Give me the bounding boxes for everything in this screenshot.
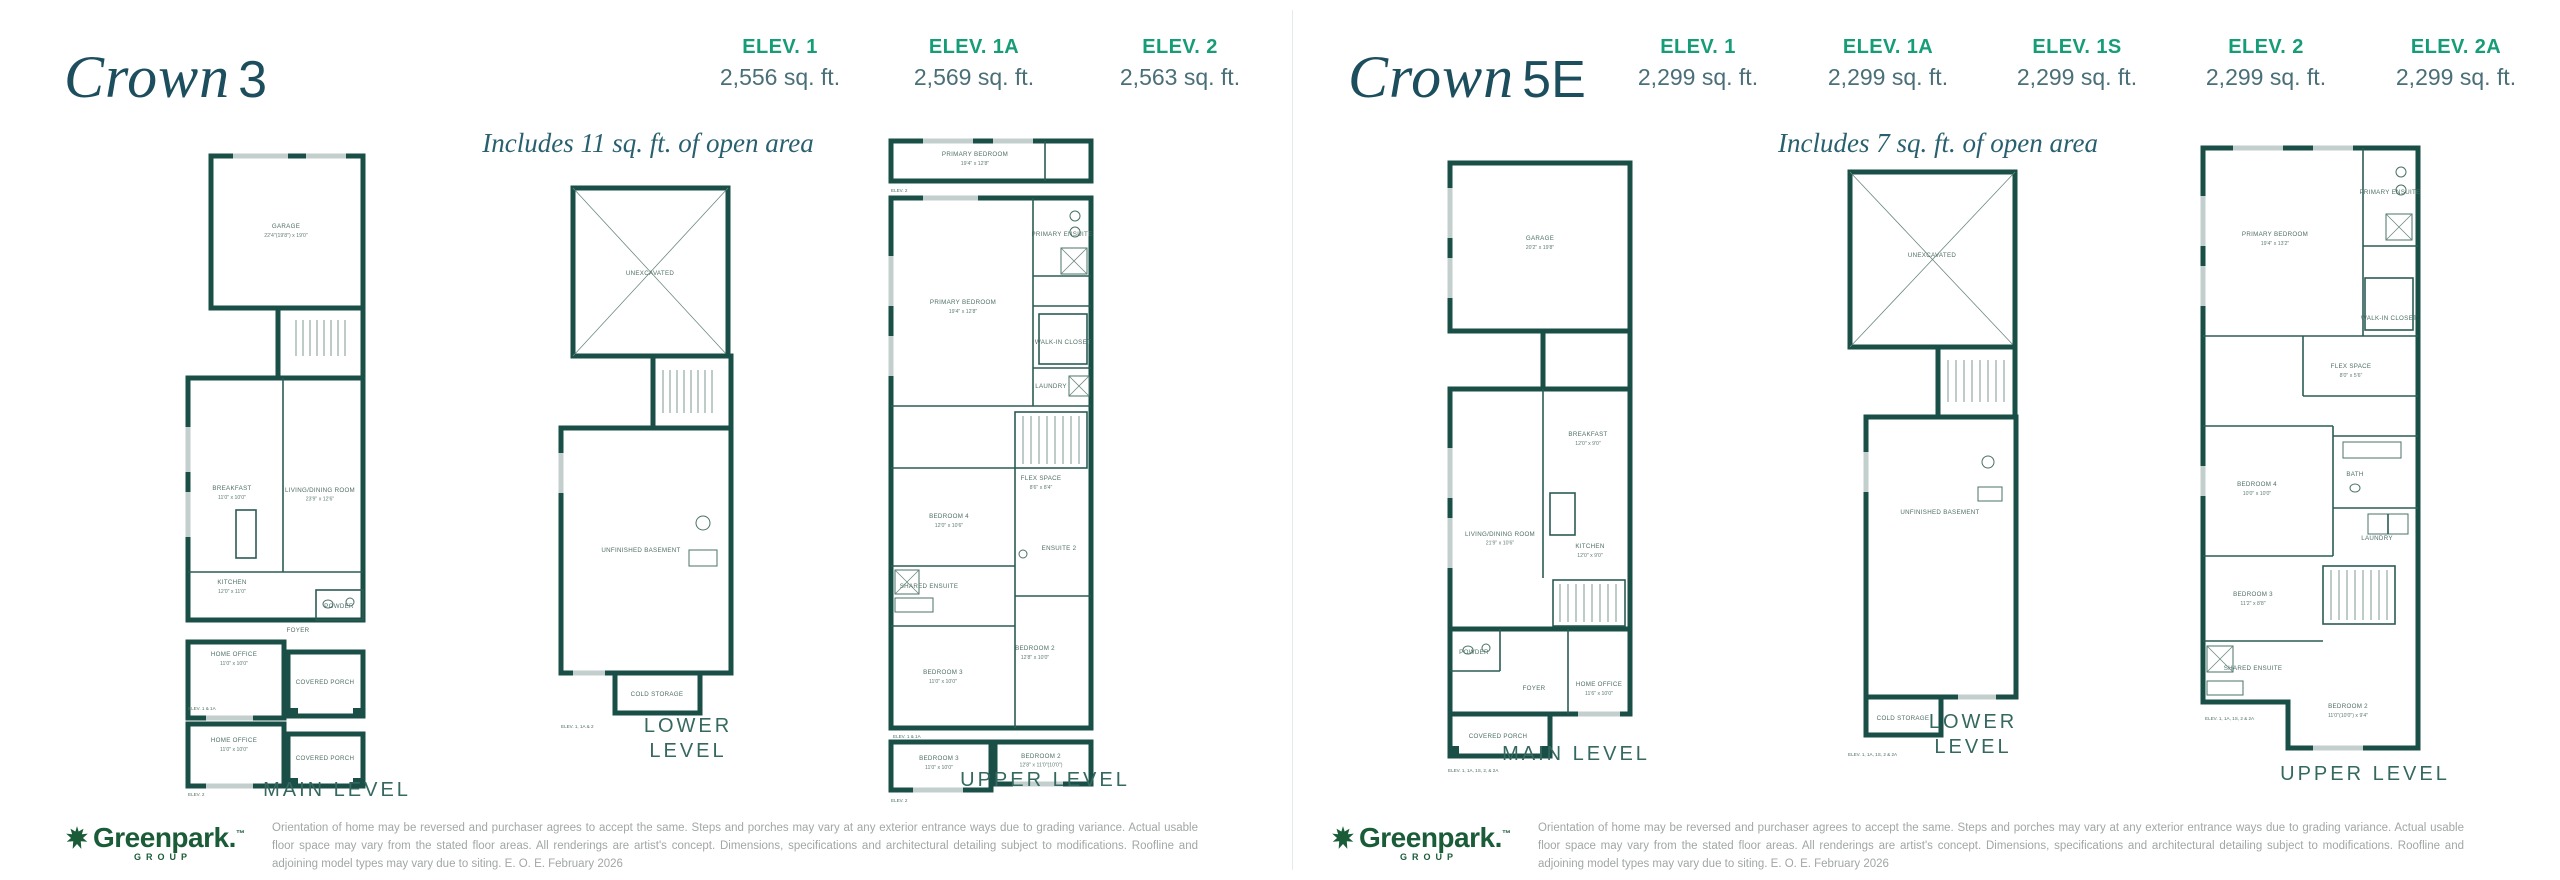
room-label: UNEXCAVATED	[626, 270, 675, 277]
room-label: HOME OFFICE	[211, 737, 257, 744]
room-label: SHARED ENSUITE	[900, 583, 959, 590]
trademark-symbol: ™	[236, 829, 245, 839]
stairs	[1560, 584, 1616, 622]
elevation-sqft: 2,299 sq. ft.	[1803, 64, 1973, 91]
elevation-col: ELEV. 1A 2,569 sq. ft.	[884, 36, 1064, 91]
room-dimensions: 11'0" x 10'0"	[220, 747, 248, 753]
elevation-variant-note: ELEV. 2	[891, 188, 908, 193]
room-label: BREAKFAST	[212, 485, 251, 492]
room-label: LAUNDRY	[2361, 535, 2393, 542]
room-label: LIVING/DINING ROOM	[285, 487, 355, 494]
level-label-main: MAIN LEVEL	[252, 778, 422, 803]
room-label: PRIMARY BEDROOM	[2242, 231, 2308, 238]
floor-plan-crown5e-lower-level: UNEXCAVATEDUNFINISHED BASEMENTCOLD STORA…	[1838, 162, 2028, 772]
room-dimensions: 12'0" x 10'6"	[935, 523, 964, 529]
room-dimensions: 12'0" x 9'0"	[1575, 441, 1601, 447]
open-area-note: Includes 11 sq. ft. of open area	[478, 128, 818, 159]
elevation-col: ELEV. 2A 2,299 sq. ft.	[2371, 36, 2541, 91]
panel-divider	[1292, 10, 1293, 870]
elevation-variant-note: ELEV. 2	[891, 798, 908, 803]
room-label: BEDROOM 2	[1015, 645, 1055, 652]
elevation-variant-note: ELEV. 1, 1A, 1S, 2, & 2A	[1448, 768, 1499, 773]
floor-plan-crown3-lower-level: UNEXCAVATEDUNFINISHED BASEMENTCOLD STORA…	[553, 178, 748, 763]
room-dimensions: 19'4" x 12'8"	[961, 161, 990, 167]
elevation-sqft: 2,299 sq. ft.	[1613, 64, 1783, 91]
room-label: LIVING/DINING ROOM	[1465, 531, 1535, 538]
room-label: BATH	[2346, 471, 2363, 478]
elevation-variant-note: ELEV. 1, 1A, 1S, 2 & 2A	[1848, 752, 1898, 757]
elevation-sqft: 2,563 sq. ft.	[1090, 64, 1270, 91]
room-label: WALK-IN CLOSET	[2361, 315, 2417, 322]
elevation-label: ELEV. 1S	[1992, 36, 2162, 59]
room-label: HOME OFFICE	[211, 651, 257, 658]
maple-leaf-icon	[64, 825, 90, 851]
stairs	[2331, 570, 2387, 620]
room-label: KITCHEN	[1575, 543, 1604, 550]
room-label: POWDER	[324, 603, 354, 610]
room-label: BEDROOM 3	[919, 755, 959, 762]
room-label: PRIMARY BEDROOM	[930, 299, 996, 306]
elevation-label: ELEV. 1	[1613, 36, 1783, 59]
room-label: PRIMARY BEDROOM	[942, 151, 1008, 158]
elevation-sqft: 2,556 sq. ft.	[690, 64, 870, 91]
maple-leaf-icon	[1330, 825, 1356, 851]
legal-disclaimer: Orientation of home may be reversed and …	[272, 820, 1198, 873]
room-dimensions: 11'0" x 10'0"	[925, 765, 953, 771]
elevation-col: ELEV. 1 2,299 sq. ft.	[1613, 36, 1783, 91]
room-label: PRIMARY ENSUITE	[2359, 189, 2420, 196]
brand-wordmark: Greenpark.™	[93, 822, 244, 854]
room-label: BEDROOM 2	[1021, 753, 1061, 760]
room-label: POWDER	[1459, 649, 1489, 656]
level-label-lower: LOWER LEVEL	[628, 714, 748, 764]
room-label: FLEX SPACE	[1021, 475, 1062, 482]
room-label: BEDROOM 2	[2328, 703, 2368, 710]
level-label-upper: UPPER LEVEL	[955, 768, 1135, 793]
elevation-sqft: 2,569 sq. ft.	[884, 64, 1064, 91]
room-label: BEDROOM 3	[923, 669, 963, 676]
room-dimensions: 12'0" x 11'0"	[218, 589, 246, 595]
room-dimensions: 12'8" x 10'0"	[1021, 655, 1050, 661]
elevation-col: ELEV. 1 2,556 sq. ft.	[690, 36, 870, 91]
room-label: COVERED PORCH	[296, 679, 355, 686]
room-dimensions: 8'0" x 5'6"	[2340, 373, 2363, 379]
stairs	[1948, 360, 2004, 402]
model-number: 3	[238, 51, 267, 109]
elevation-label: ELEV. 2	[2181, 36, 2351, 59]
model-title-crown-3: Crown3	[64, 43, 267, 112]
room-dimensions: 10'0" x 10'0"	[2243, 491, 2272, 497]
stairs	[296, 320, 345, 356]
room-dimensions: 11'2" x 8'8"	[2240, 601, 2265, 607]
elevation-col: ELEV. 1A 2,299 sq. ft.	[1803, 36, 1973, 91]
greenpark-logo: Greenpark.™ GROUP	[64, 822, 264, 862]
room-dimensions: 19'4" x 12'8"	[949, 309, 978, 315]
room-dimensions: 11'0" x 10'0"	[218, 495, 246, 501]
elevation-variant-note: ELEV. 1 & 1A	[893, 734, 922, 739]
elevation-variant-note: ELEV. 1 & 1A	[188, 706, 217, 711]
level-label-upper: UPPER LEVEL	[2275, 762, 2455, 787]
room-label: WALK-IN CLOSET	[1035, 339, 1091, 346]
model-name: Crown	[1348, 44, 1514, 110]
level-label-main: MAIN LEVEL	[1491, 742, 1661, 767]
room-label: BEDROOM 3	[2233, 591, 2273, 598]
floor-plan-crown5e-upper-level: PRIMARY BEDROOM19'4" x 13'2"PRIMARY ENSU…	[2193, 136, 2428, 806]
elevation-label: ELEV. 1A	[1803, 36, 1973, 59]
model-title-crown-5e: Crown5E	[1348, 43, 1586, 112]
elevation-variant-note: ELEV. 1, 1A, 1S, 2 & 2A	[2205, 716, 2255, 721]
room-dimensions: 11'0" x 10'0"	[929, 679, 957, 685]
room-label: COLD STORAGE	[631, 691, 684, 698]
room-dimensions: 21'9" x 10'6"	[1486, 541, 1515, 547]
legal-disclaimer: Orientation of home may be reversed and …	[1538, 820, 2464, 873]
open-area-note: Includes 7 sq. ft. of open area	[1768, 128, 2108, 159]
room-dimensions: 11'0"(10'0") x 9'4"	[2328, 713, 2368, 719]
room-label: FOYER	[287, 627, 310, 634]
room-label: LAUNDRY	[1035, 383, 1067, 390]
floor-plan-crown3-upper-level: PRIMARY BEDROOM19'4" x 12'8"PRIMARY BEDR…	[883, 136, 1103, 806]
model-name: Crown	[64, 44, 230, 110]
room-dimensions: 11'6" x 10'0"	[1585, 691, 1613, 697]
trademark-symbol: ™	[1502, 829, 1511, 839]
elevation-col: ELEV. 1S 2,299 sq. ft.	[1992, 36, 2162, 91]
floorplan-flyer-page: Crown3 ELEV. 1 2,556 sq. ft. ELEV. 1A 2,…	[0, 0, 2560, 880]
room-dimensions: 23'9" x 12'6"	[306, 497, 335, 503]
elevation-label: ELEV. 2	[1090, 36, 1270, 59]
level-label-lower: LOWER LEVEL	[1913, 710, 2033, 760]
elevation-label: ELEV. 2A	[2371, 36, 2541, 59]
model-number: 5E	[1522, 51, 1586, 109]
room-label: ENSUITE 2	[1042, 545, 1077, 552]
room-label: UNFINISHED BASEMENT	[1900, 509, 1979, 516]
room-label: UNEXCAVATED	[1908, 252, 1957, 259]
floor-plan-crown5e-main-level: GARAGE20'2" x 19'8"BREAKFAST12'0" x 9'0"…	[1438, 148, 1663, 788]
room-label: SHARED ENSUITE	[2224, 665, 2283, 672]
room-label: BEDROOM 4	[929, 513, 969, 520]
room-dimensions: 8'6" x 8'4"	[1030, 485, 1053, 491]
room-label: COVERED PORCH	[1469, 733, 1528, 740]
elevation-col: ELEV. 2 2,563 sq. ft.	[1090, 36, 1270, 91]
elevation-variant-note: ELEV. 2	[188, 792, 205, 797]
room-label: UNFINISHED BASEMENT	[601, 547, 680, 554]
elevation-sqft: 2,299 sq. ft.	[1992, 64, 2162, 91]
greenpark-logo: Greenpark.™ GROUP	[1330, 822, 1530, 862]
stairs	[663, 370, 712, 413]
elevation-col: ELEV. 2 2,299 sq. ft.	[2181, 36, 2351, 91]
room-dimensions: 12'0" x 9'0"	[1577, 553, 1603, 559]
room-label: GARAGE	[1526, 235, 1554, 242]
elevation-variant-note: ELEV. 1, 1A & 2	[561, 724, 594, 729]
room-dimensions: 11'0" x 10'0"	[220, 661, 248, 667]
elevation-sqft: 2,299 sq. ft.	[2181, 64, 2351, 91]
room-label: GARAGE	[272, 223, 300, 230]
room-label: HOME OFFICE	[1576, 681, 1622, 688]
elevation-label: ELEV. 1A	[884, 36, 1064, 59]
room-label: COVERED PORCH	[296, 755, 355, 762]
room-dimensions: 20'2" x 19'8"	[1526, 245, 1555, 251]
room-dimensions: 19'4" x 13'2"	[2261, 241, 2290, 247]
room-label: KITCHEN	[217, 579, 246, 586]
stairs	[1023, 416, 1079, 464]
room-label: FLEX SPACE	[2331, 363, 2372, 370]
brand-wordmark: Greenpark.™	[1359, 822, 1510, 854]
floor-plan-crown3-main-level: GARAGE22'4"(19'8") x 19'0"BREAKFAST11'0"…	[178, 142, 393, 807]
elevation-sqft: 2,299 sq. ft.	[2371, 64, 2541, 91]
room-dimensions: 22'4"(19'8") x 19'0"	[264, 233, 308, 239]
room-label: PRIMARY ENSUITE	[1031, 231, 1092, 238]
room-label: FOYER	[1523, 685, 1546, 692]
room-label: BEDROOM 4	[2237, 481, 2277, 488]
room-label: BREAKFAST	[1568, 431, 1607, 438]
elevation-label: ELEV. 1	[690, 36, 870, 59]
